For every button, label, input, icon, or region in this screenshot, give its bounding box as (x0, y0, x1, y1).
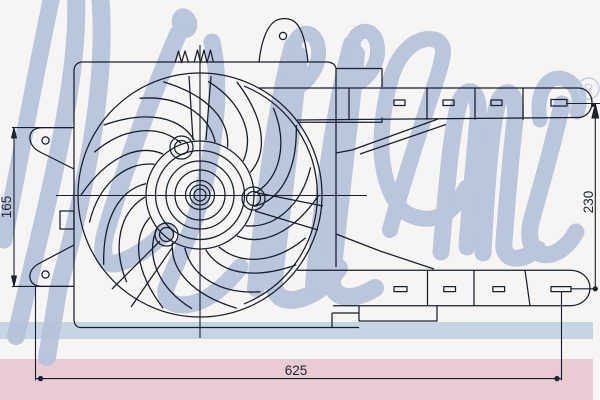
svg-text:230: 230 (581, 191, 596, 214)
svg-text:625: 625 (285, 363, 308, 378)
svg-text:165: 165 (0, 196, 14, 219)
svg-text:R: R (584, 82, 594, 97)
